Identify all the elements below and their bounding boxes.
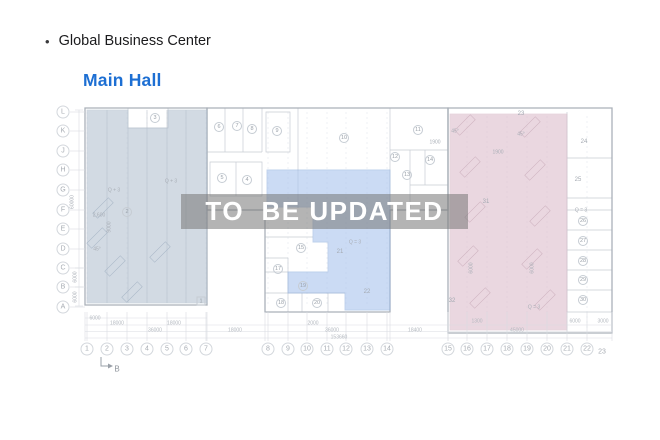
room-number: 10	[339, 133, 349, 143]
plan-annotation: 6000	[470, 262, 475, 273]
dimension-label: 36000	[148, 329, 162, 334]
plan-annotation: 45°	[517, 133, 525, 138]
room-number: 2	[122, 207, 132, 217]
plan-annotation: Q = 3	[349, 241, 361, 246]
room-number: 32	[449, 298, 456, 304]
floor-plan: LKJHGFEDCBA12345678910111213141516171819…	[0, 0, 660, 440]
room-number: 5	[217, 173, 227, 183]
row-axis-label: K	[57, 125, 70, 138]
room-number: 20	[312, 298, 322, 308]
room-number: 14	[425, 155, 435, 165]
section-marker-label: B	[114, 365, 119, 374]
col-axis-label: 4	[141, 343, 154, 356]
row-axis-label: F	[57, 204, 70, 217]
col-axis-label: 17	[481, 343, 494, 356]
room-number: 9	[272, 126, 282, 136]
room-number: 17	[273, 264, 283, 274]
dimension-label: 6000	[89, 317, 100, 322]
room-number: 15	[296, 243, 306, 253]
plan-annotation: 1900	[492, 151, 503, 156]
plan-annotation: 9000	[108, 221, 113, 232]
room-number: 18	[276, 298, 286, 308]
col-axis-label: 15	[442, 343, 455, 356]
dimension-label: 45000	[510, 329, 524, 334]
room-number: 3	[150, 113, 160, 123]
dimension-label: 18000	[167, 322, 181, 327]
plan-annotation: Q + 3	[165, 180, 177, 185]
col-axis-label: 22	[581, 343, 594, 356]
col-axis-label: 23	[598, 349, 606, 356]
col-axis-label: 2	[101, 343, 114, 356]
col-axis-label: 14	[381, 343, 394, 356]
room-number: 30	[578, 295, 588, 305]
col-axis-label: 3	[121, 343, 134, 356]
col-axis-label: 11	[321, 343, 334, 356]
plan-annotation: 1900	[429, 141, 440, 146]
plan-annotation: 2,600	[93, 214, 106, 219]
room-number: 8	[247, 124, 257, 134]
col-axis-label: 10	[301, 343, 314, 356]
col-axis-label: 19	[521, 343, 534, 356]
plan-annotation: 6000	[74, 291, 79, 302]
col-axis-label: 16	[461, 343, 474, 356]
room-number: 24	[581, 139, 588, 145]
row-axis-label: L	[57, 106, 70, 119]
row-axis-label: J	[57, 145, 70, 158]
plan-annotation: 45°	[451, 130, 459, 135]
col-axis-label: 8	[262, 343, 275, 356]
plan-annotation: Q + 3	[108, 189, 120, 194]
col-axis-label: 7	[200, 343, 213, 356]
row-axis-label: C	[57, 262, 70, 275]
dimension-label: 36000	[325, 329, 339, 334]
room-number: 26	[578, 216, 588, 226]
room-number: 7	[232, 121, 242, 131]
room-number: 31	[483, 199, 490, 205]
col-axis-label: 12	[340, 343, 353, 356]
plan-annotation: 60000	[71, 195, 76, 209]
col-axis-label: 18	[501, 343, 514, 356]
row-axis-label: G	[57, 184, 70, 197]
dimension-label: 18400	[408, 329, 422, 334]
room-number: 21	[337, 249, 344, 255]
row-axis-label: A	[57, 301, 70, 314]
room-number: 1	[197, 297, 206, 306]
room-number: 25	[575, 177, 582, 183]
row-axis-label: H	[57, 164, 70, 177]
dimension-label: 18000	[110, 322, 124, 327]
row-axis-label: E	[57, 223, 70, 236]
room-number: 12	[390, 152, 400, 162]
row-axis-label: B	[57, 281, 70, 294]
dimension-label: 6000	[569, 320, 580, 325]
row-axis-label: D	[57, 243, 70, 256]
room-number: 11	[413, 125, 423, 135]
room-number: 27	[578, 236, 588, 246]
col-axis-label: 6	[180, 343, 193, 356]
plan-annotation: Q = 3	[528, 306, 540, 311]
room-number: 22	[364, 289, 371, 295]
dimension-label: 1300	[471, 320, 482, 325]
room-number: 4	[242, 175, 252, 185]
plan-annotation: 6000	[74, 271, 79, 282]
col-axis-label: 9	[282, 343, 295, 356]
main-hall-page: • Global Business Center Main Hall LKJHG…	[0, 0, 660, 440]
dimension-label: 3000	[597, 320, 608, 325]
dimension-label: 18000	[228, 329, 242, 334]
col-axis-label: 1	[81, 343, 94, 356]
dimension-label: 2000	[307, 322, 318, 327]
col-axis-label: 21	[561, 343, 574, 356]
plan-annotation: 6000	[531, 262, 536, 273]
room-number: 13	[402, 170, 412, 180]
dimension-label: 153660	[331, 336, 348, 341]
watermark: TO BE UPDATED	[181, 194, 468, 229]
col-axis-label: 13	[361, 343, 374, 356]
room-number: 23	[518, 111, 525, 117]
col-axis-label: 20	[541, 343, 554, 356]
room-number: 19	[298, 281, 308, 291]
plan-annotation: 45°	[93, 248, 101, 253]
room-number: 29	[578, 275, 588, 285]
room-number: 6	[214, 122, 224, 132]
col-axis-label: 5	[161, 343, 174, 356]
plan-annotation: Q = 3	[575, 209, 587, 214]
room-number: 28	[578, 256, 588, 266]
